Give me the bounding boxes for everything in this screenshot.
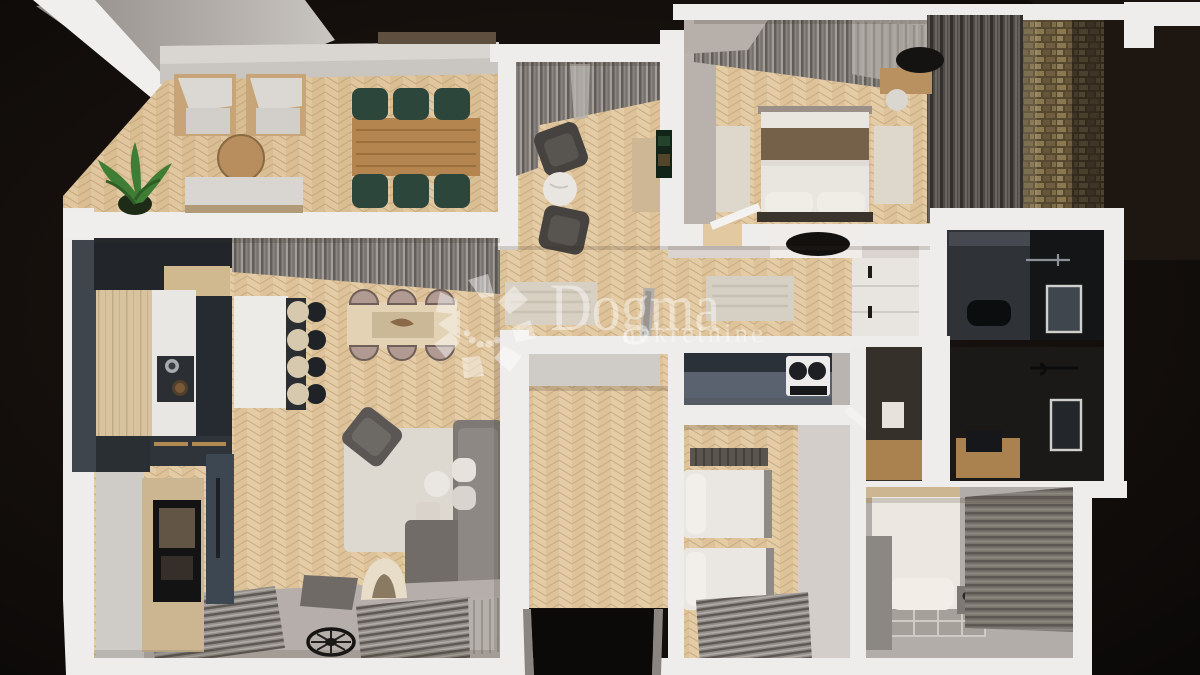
svg-text:nekretnine: nekretnine [622,318,766,348]
